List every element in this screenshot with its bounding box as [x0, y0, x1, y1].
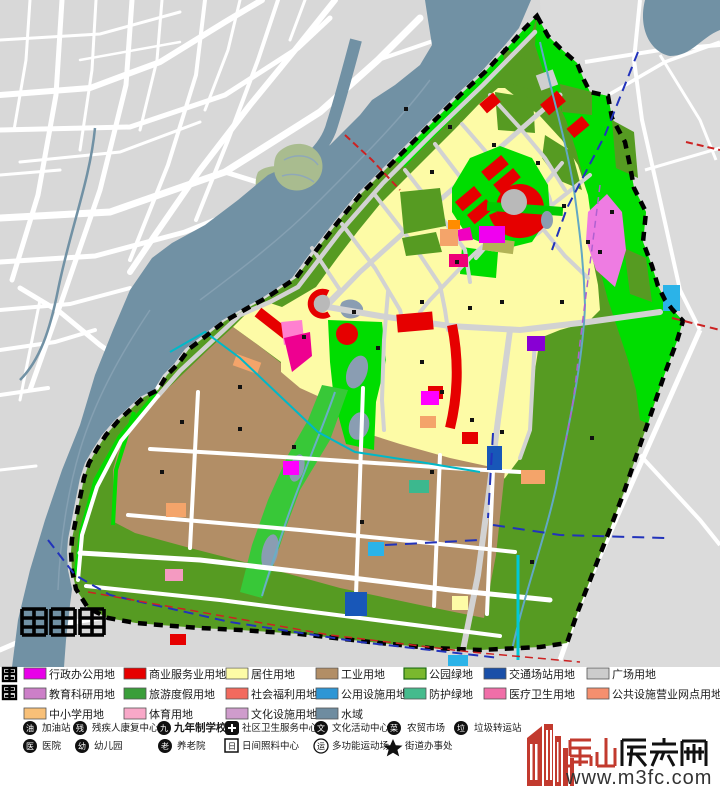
- svg-text:医疗卫生用地: 医疗卫生用地: [509, 687, 575, 701]
- svg-text:日: 日: [228, 742, 236, 751]
- svg-text:文: 文: [317, 723, 325, 733]
- svg-text:医: 医: [26, 742, 34, 751]
- svg-text:街道办事处: 街道办事处: [405, 740, 453, 752]
- svg-text:垃: 垃: [457, 723, 465, 733]
- svg-text:日间照料中心: 日间照料中心: [242, 740, 300, 752]
- svg-text:残疾人康复中心: 残疾人康复中心: [92, 722, 159, 734]
- svg-text:水域: 水域: [341, 708, 363, 721]
- svg-text:九: 九: [160, 724, 168, 733]
- svg-text:残: 残: [76, 723, 84, 733]
- svg-text:居住用地: 居住用地: [251, 667, 295, 681]
- svg-text:运: 运: [317, 742, 325, 751]
- svg-text:社会福利用地: 社会福利用地: [251, 687, 317, 701]
- svg-text:广场用地: 广场用地: [612, 667, 656, 681]
- svg-text:交通场站用地: 交通场站用地: [509, 667, 575, 681]
- svg-text:老: 老: [161, 741, 169, 751]
- svg-text:医院: 医院: [42, 740, 62, 752]
- svg-text:www.m3fc.com: www.m3fc.com: [565, 767, 712, 788]
- svg-text:文化活动中心: 文化活动中心: [332, 722, 390, 734]
- svg-text:油: 油: [26, 723, 34, 733]
- svg-text:九年制学校: 九年制学校: [173, 721, 227, 734]
- svg-text:公用设施用地: 公用设施用地: [341, 688, 407, 701]
- svg-text:养老院: 养老院: [177, 740, 206, 752]
- svg-text:商业服务业用地: 商业服务业用地: [149, 667, 226, 681]
- svg-text:幼儿园: 幼儿园: [94, 740, 123, 752]
- svg-text:社区卫生服务中心: 社区卫生服务中心: [242, 722, 319, 734]
- svg-text:农贸市场: 农贸市场: [407, 722, 445, 734]
- svg-text:中小学用地: 中小学用地: [49, 707, 104, 721]
- svg-text:文化设施用地: 文化设施用地: [251, 707, 317, 721]
- svg-text:教育科研用地: 教育科研用地: [49, 687, 115, 701]
- svg-text:幼: 幼: [78, 741, 86, 751]
- svg-text:防护绿地: 防护绿地: [429, 687, 473, 701]
- svg-text:菜: 菜: [390, 723, 398, 733]
- svg-text:旅游度假用地: 旅游度假用地: [149, 687, 215, 701]
- svg-text:多功能运动场: 多功能运动场: [332, 740, 389, 752]
- svg-text:工业用地: 工业用地: [341, 668, 385, 681]
- svg-text:加油站: 加油站: [42, 722, 71, 734]
- svg-text:公园绿地: 公园绿地: [429, 667, 473, 681]
- svg-text:垃圾转运站: 垃圾转运站: [474, 722, 522, 734]
- svg-text:体育用地: 体育用地: [149, 707, 193, 721]
- svg-text:行政办公用地: 行政办公用地: [49, 667, 115, 681]
- svg-text:公共设施营业网点用地: 公共设施营业网点用地: [612, 687, 720, 701]
